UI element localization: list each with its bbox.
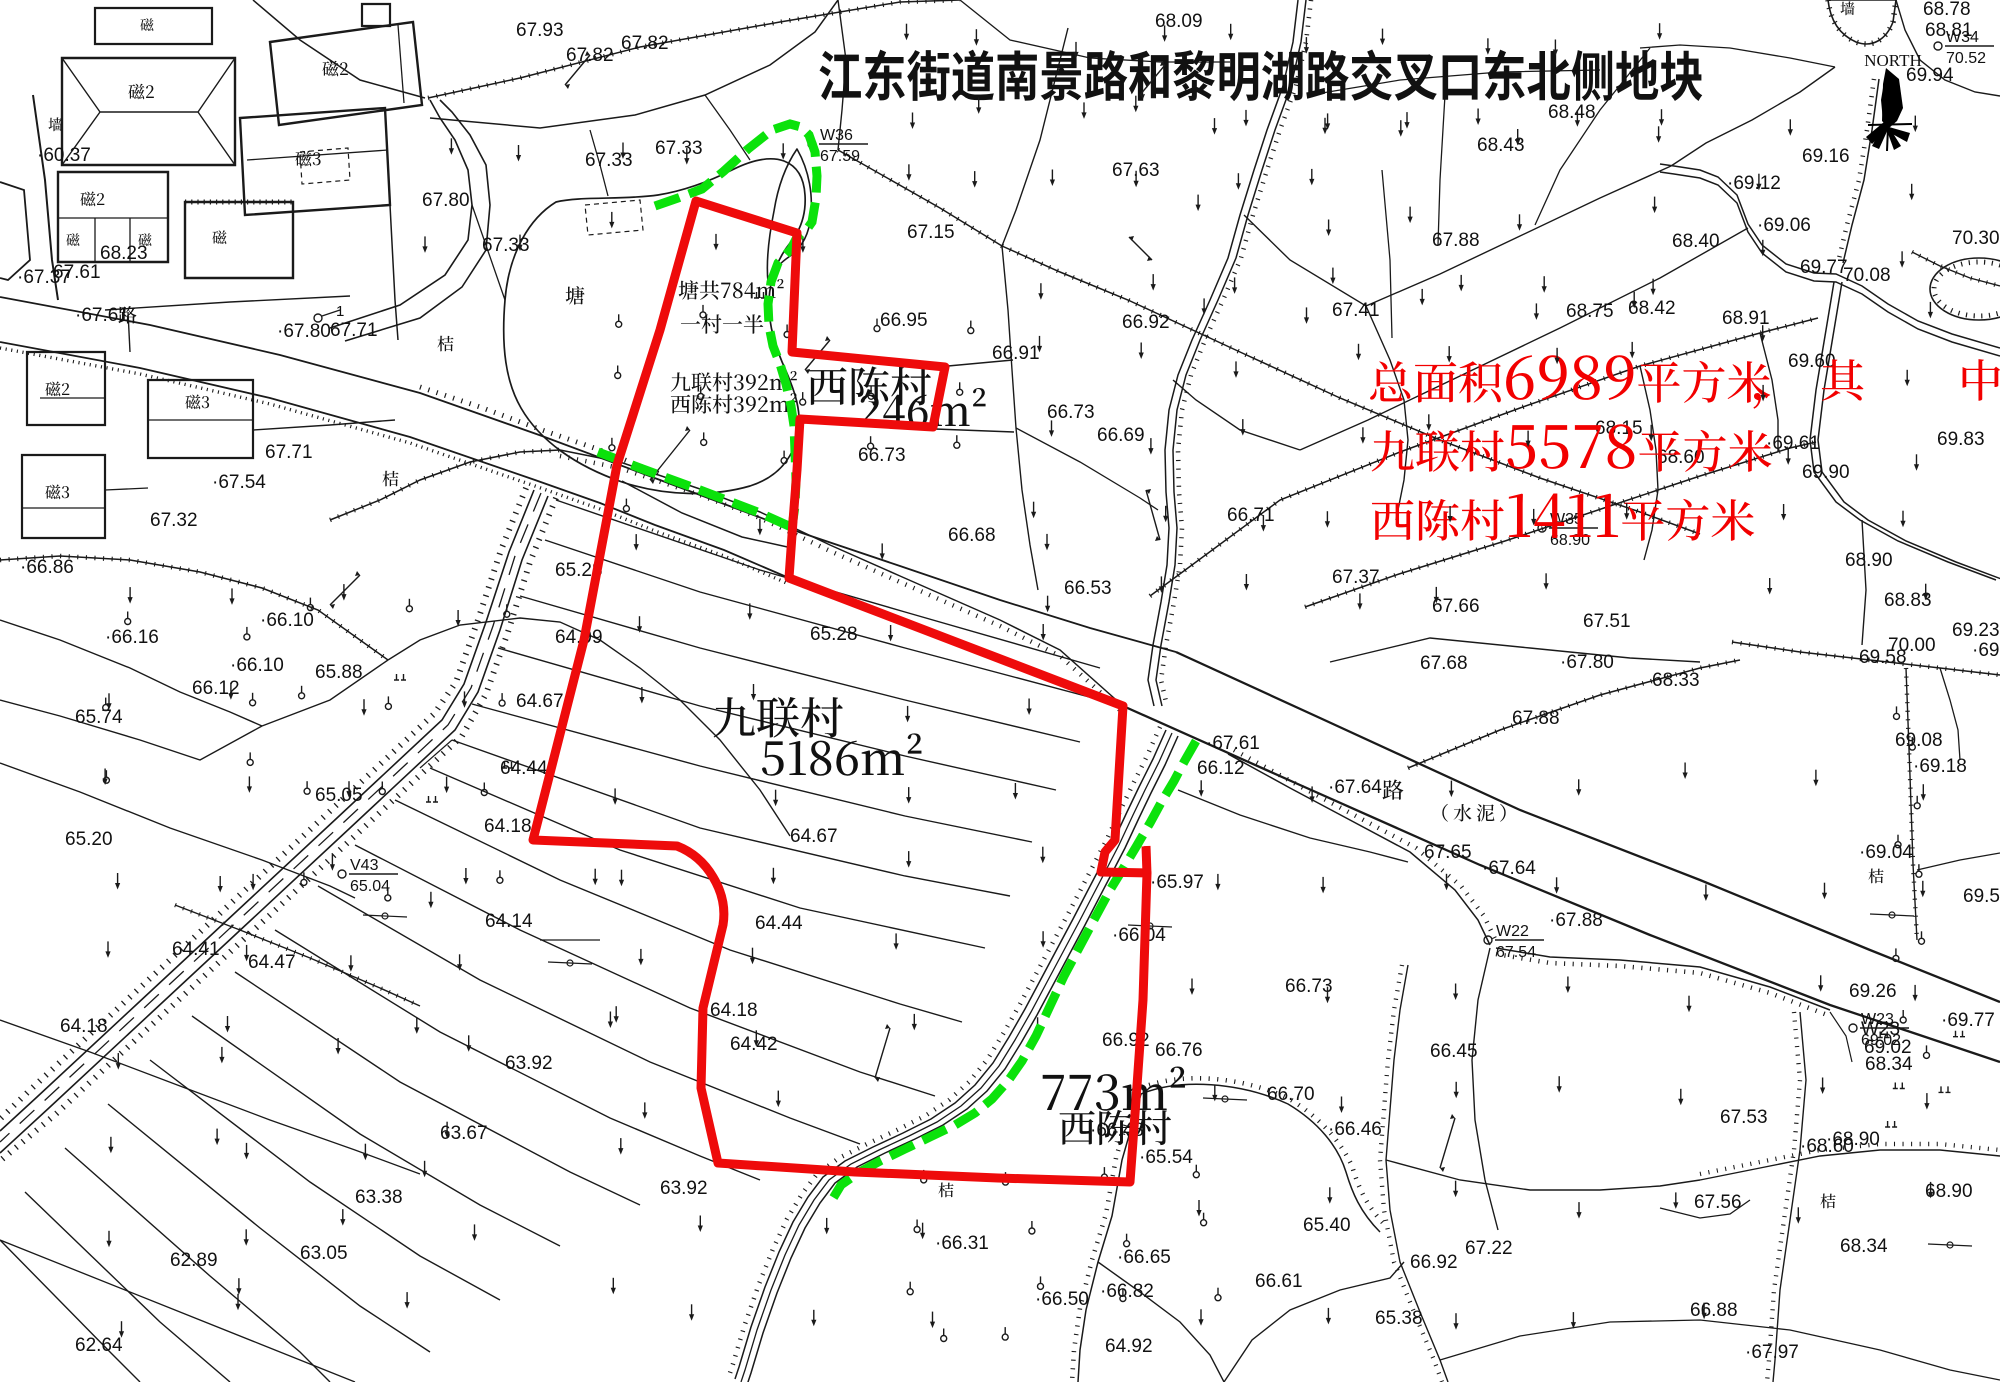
svg-text:67.56: 67.56 — [1694, 1192, 1742, 1213]
svg-text:66.53: 66.53 — [1064, 578, 1112, 599]
svg-text:·69.61: ·69.61 — [1766, 433, 1820, 454]
svg-text:65.38: 65.38 — [1375, 1308, 1423, 1329]
svg-text:69.08: 69.08 — [1895, 730, 1943, 751]
svg-text:69.53: 69.53 — [1963, 886, 2000, 907]
svg-text:67.71: 67.71 — [330, 320, 378, 341]
svg-text:68.42: 68.42 — [1628, 298, 1676, 319]
svg-text:67.37: 67.37 — [1332, 567, 1380, 588]
svg-text:62.89: 62.89 — [170, 1250, 218, 1271]
svg-text:65.04: 65.04 — [350, 878, 390, 895]
svg-text:70.52: 70.52 — [1946, 50, 1986, 67]
svg-text:·68.90: ·68.90 — [1826, 1129, 1880, 1150]
svg-text:·67.54: ·67.54 — [212, 472, 266, 493]
svg-text:66.61: 66.61 — [1255, 1271, 1303, 1292]
svg-text:67.80: 67.80 — [422, 190, 470, 211]
svg-text:W34: W34 — [1946, 29, 1979, 46]
svg-text:69.23: 69.23 — [1952, 620, 2000, 641]
svg-text:68.83: 68.83 — [1884, 590, 1932, 611]
svg-text:66.45: 66.45 — [1430, 1041, 1478, 1062]
svg-text:67.51: 67.51 — [1583, 611, 1631, 632]
svg-text:63.05: 63.05 — [300, 1243, 348, 1264]
svg-text:·67.97: ·67.97 — [1745, 1342, 1799, 1363]
svg-text:64.67: 64.67 — [790, 826, 838, 847]
svg-text:63.38: 63.38 — [355, 1187, 403, 1208]
svg-text:66.69: 66.69 — [1097, 425, 1145, 446]
svg-text:66.70: 66.70 — [1267, 1084, 1315, 1105]
svg-text:·66.82: ·66.82 — [1100, 1281, 1154, 1302]
svg-text:1: 1 — [336, 303, 344, 320]
svg-text:·66.16: ·66.16 — [105, 627, 159, 648]
svg-text:66.68: 66.68 — [948, 525, 996, 546]
svg-text:·66.50: ·66.50 — [1035, 1289, 1089, 1310]
svg-text:·69.77: ·69.77 — [1941, 1010, 1995, 1031]
svg-text:65.20: 65.20 — [65, 829, 113, 850]
svg-text:70.08: 70.08 — [1843, 265, 1891, 286]
svg-text:·65.97: ·65.97 — [1150, 872, 1204, 893]
svg-text:67.53: 67.53 — [1720, 1107, 1768, 1128]
svg-text:68.90: 68.90 — [1925, 1181, 1973, 1202]
svg-text:·66.10: ·66.10 — [230, 655, 284, 676]
svg-text:66.88: 66.88 — [1690, 1300, 1738, 1321]
svg-text:65.05: 65.05 — [315, 785, 363, 806]
svg-text:68.78: 68.78 — [1923, 0, 1971, 20]
svg-text:65.28: 65.28 — [810, 624, 858, 645]
svg-text:63.92: 63.92 — [660, 1178, 708, 1199]
svg-text:64.18: 64.18 — [484, 816, 532, 837]
svg-text:W22: W22 — [1496, 923, 1529, 940]
svg-text:·66.65: ·66.65 — [1117, 1247, 1171, 1268]
svg-text:68.40: 68.40 — [1672, 231, 1720, 252]
svg-text:·69.18: ·69.18 — [1913, 756, 1967, 777]
svg-text:67.93: 67.93 — [516, 20, 564, 41]
svg-text:67.33: 67.33 — [482, 235, 530, 256]
svg-text:69.90: 69.90 — [1802, 462, 1850, 483]
svg-text:64.18: 64.18 — [60, 1016, 108, 1037]
svg-text:·67.80: ·67.80 — [277, 321, 331, 342]
svg-text:·65.54: ·65.54 — [1139, 1147, 1193, 1168]
svg-text:NORTH: NORTH — [1864, 51, 1922, 70]
svg-text:67.15: 67.15 — [907, 222, 955, 243]
svg-text:69.02: 69.02 — [1861, 1032, 1901, 1049]
svg-text:·69.06: ·69.06 — [1757, 215, 1811, 236]
svg-text:66.91: 66.91 — [992, 343, 1040, 364]
svg-text:64.44: 64.44 — [500, 758, 548, 779]
svg-text:·69.79: ·69.79 — [1972, 640, 2000, 661]
svg-text:68.48: 68.48 — [1548, 102, 1596, 123]
svg-text:W36: W36 — [820, 127, 853, 144]
svg-text:67.88: 67.88 — [1432, 230, 1480, 251]
svg-text:69.26: 69.26 — [1849, 981, 1897, 1002]
svg-text:68.33: 68.33 — [1652, 670, 1700, 691]
svg-text:68.90: 68.90 — [1845, 550, 1893, 571]
svg-text:66.95: 66.95 — [880, 310, 928, 331]
svg-text:69.60: 69.60 — [1788, 351, 1836, 372]
svg-text:68.34: 68.34 — [1840, 1236, 1888, 1257]
svg-text:66.73: 66.73 — [858, 445, 906, 466]
svg-text:·67.80: ·67.80 — [1560, 652, 1614, 673]
svg-text:65.74: 65.74 — [75, 707, 123, 728]
svg-text:66.92: 66.92 — [1410, 1252, 1458, 1273]
svg-text:66.73: 66.73 — [1285, 976, 1333, 997]
svg-text:65.88: 65.88 — [315, 662, 363, 683]
svg-text:·67.37: ·67.37 — [17, 267, 71, 288]
svg-text:62.64: 62.64 — [75, 1335, 123, 1356]
svg-text:67.66: 67.66 — [1432, 596, 1480, 617]
svg-text:·66.31: ·66.31 — [935, 1233, 989, 1254]
svg-text:67.59: 67.59 — [820, 148, 860, 165]
svg-text:68.15: 68.15 — [1595, 418, 1643, 439]
svg-text:67.54: 67.54 — [1496, 944, 1536, 961]
svg-text:67.33: 67.33 — [655, 138, 703, 159]
svg-text:68.23: 68.23 — [100, 243, 148, 264]
svg-text:69.77: 69.77 — [1800, 257, 1848, 278]
svg-text:65.40: 65.40 — [1303, 1215, 1351, 1236]
svg-text:·66.04: ·66.04 — [1112, 925, 1166, 946]
svg-text:67.71: 67.71 — [265, 442, 313, 463]
svg-text:·67.88: ·67.88 — [1549, 910, 1603, 931]
svg-text:63.92: 63.92 — [505, 1053, 553, 1074]
svg-text:69.83: 69.83 — [1937, 429, 1985, 450]
svg-text:67.22: 67.22 — [1465, 1238, 1513, 1259]
svg-text:70.00: 70.00 — [1888, 635, 1936, 656]
svg-text:68.09: 68.09 — [1155, 11, 1203, 32]
svg-text:·66.46: ·66.46 — [1328, 1119, 1382, 1140]
svg-text:V43: V43 — [350, 857, 379, 874]
svg-text:64.92: 64.92 — [1105, 1336, 1153, 1357]
svg-text:W23: W23 — [1861, 1011, 1894, 1028]
svg-text:70.30: 70.30 — [1952, 228, 2000, 249]
svg-text:67.88: 67.88 — [1512, 708, 1560, 729]
svg-text:66.76: 66.76 — [1155, 1040, 1203, 1061]
svg-text:·69.12: ·69.12 — [1727, 173, 1781, 194]
svg-text:67.33: 67.33 — [585, 150, 633, 171]
svg-text:·67.64: ·67.64 — [1328, 777, 1382, 798]
svg-text:67.68: 67.68 — [1420, 653, 1468, 674]
svg-text:66.71: 66.71 — [1227, 505, 1275, 526]
svg-text:68.75: 68.75 — [1566, 301, 1614, 322]
svg-text:64.41: 64.41 — [172, 939, 220, 960]
svg-text:69.16: 69.16 — [1802, 146, 1850, 167]
svg-text:64.44: 64.44 — [755, 913, 803, 934]
svg-text:·69.04: ·69.04 — [1859, 842, 1913, 863]
svg-text:64.14: 64.14 — [485, 911, 533, 932]
svg-text:66.92: 66.92 — [1122, 312, 1170, 333]
svg-text:64.47: 64.47 — [248, 952, 296, 973]
svg-text:64.42: 64.42 — [730, 1034, 778, 1055]
svg-text:·66.10: ·66.10 — [260, 610, 314, 631]
svg-text:67.65: 67.65 — [1424, 842, 1472, 863]
svg-text:·67.61: ·67.61 — [1206, 733, 1260, 754]
svg-text:67.82: 67.82 — [621, 33, 669, 54]
svg-text:64.18: 64.18 — [710, 1000, 758, 1021]
svg-text:·67.64: ·67.64 — [1482, 858, 1536, 879]
svg-text:64.67: 64.67 — [516, 691, 564, 712]
svg-text:66.12: 66.12 — [1197, 758, 1245, 779]
svg-text:66.73: 66.73 — [1047, 402, 1095, 423]
svg-text:·60.37: ·60.37 — [37, 145, 91, 166]
svg-text:67.41: 67.41 — [1332, 300, 1380, 321]
svg-text:67.32: 67.32 — [150, 510, 198, 531]
svg-text:·66.86: ·66.86 — [20, 557, 74, 578]
